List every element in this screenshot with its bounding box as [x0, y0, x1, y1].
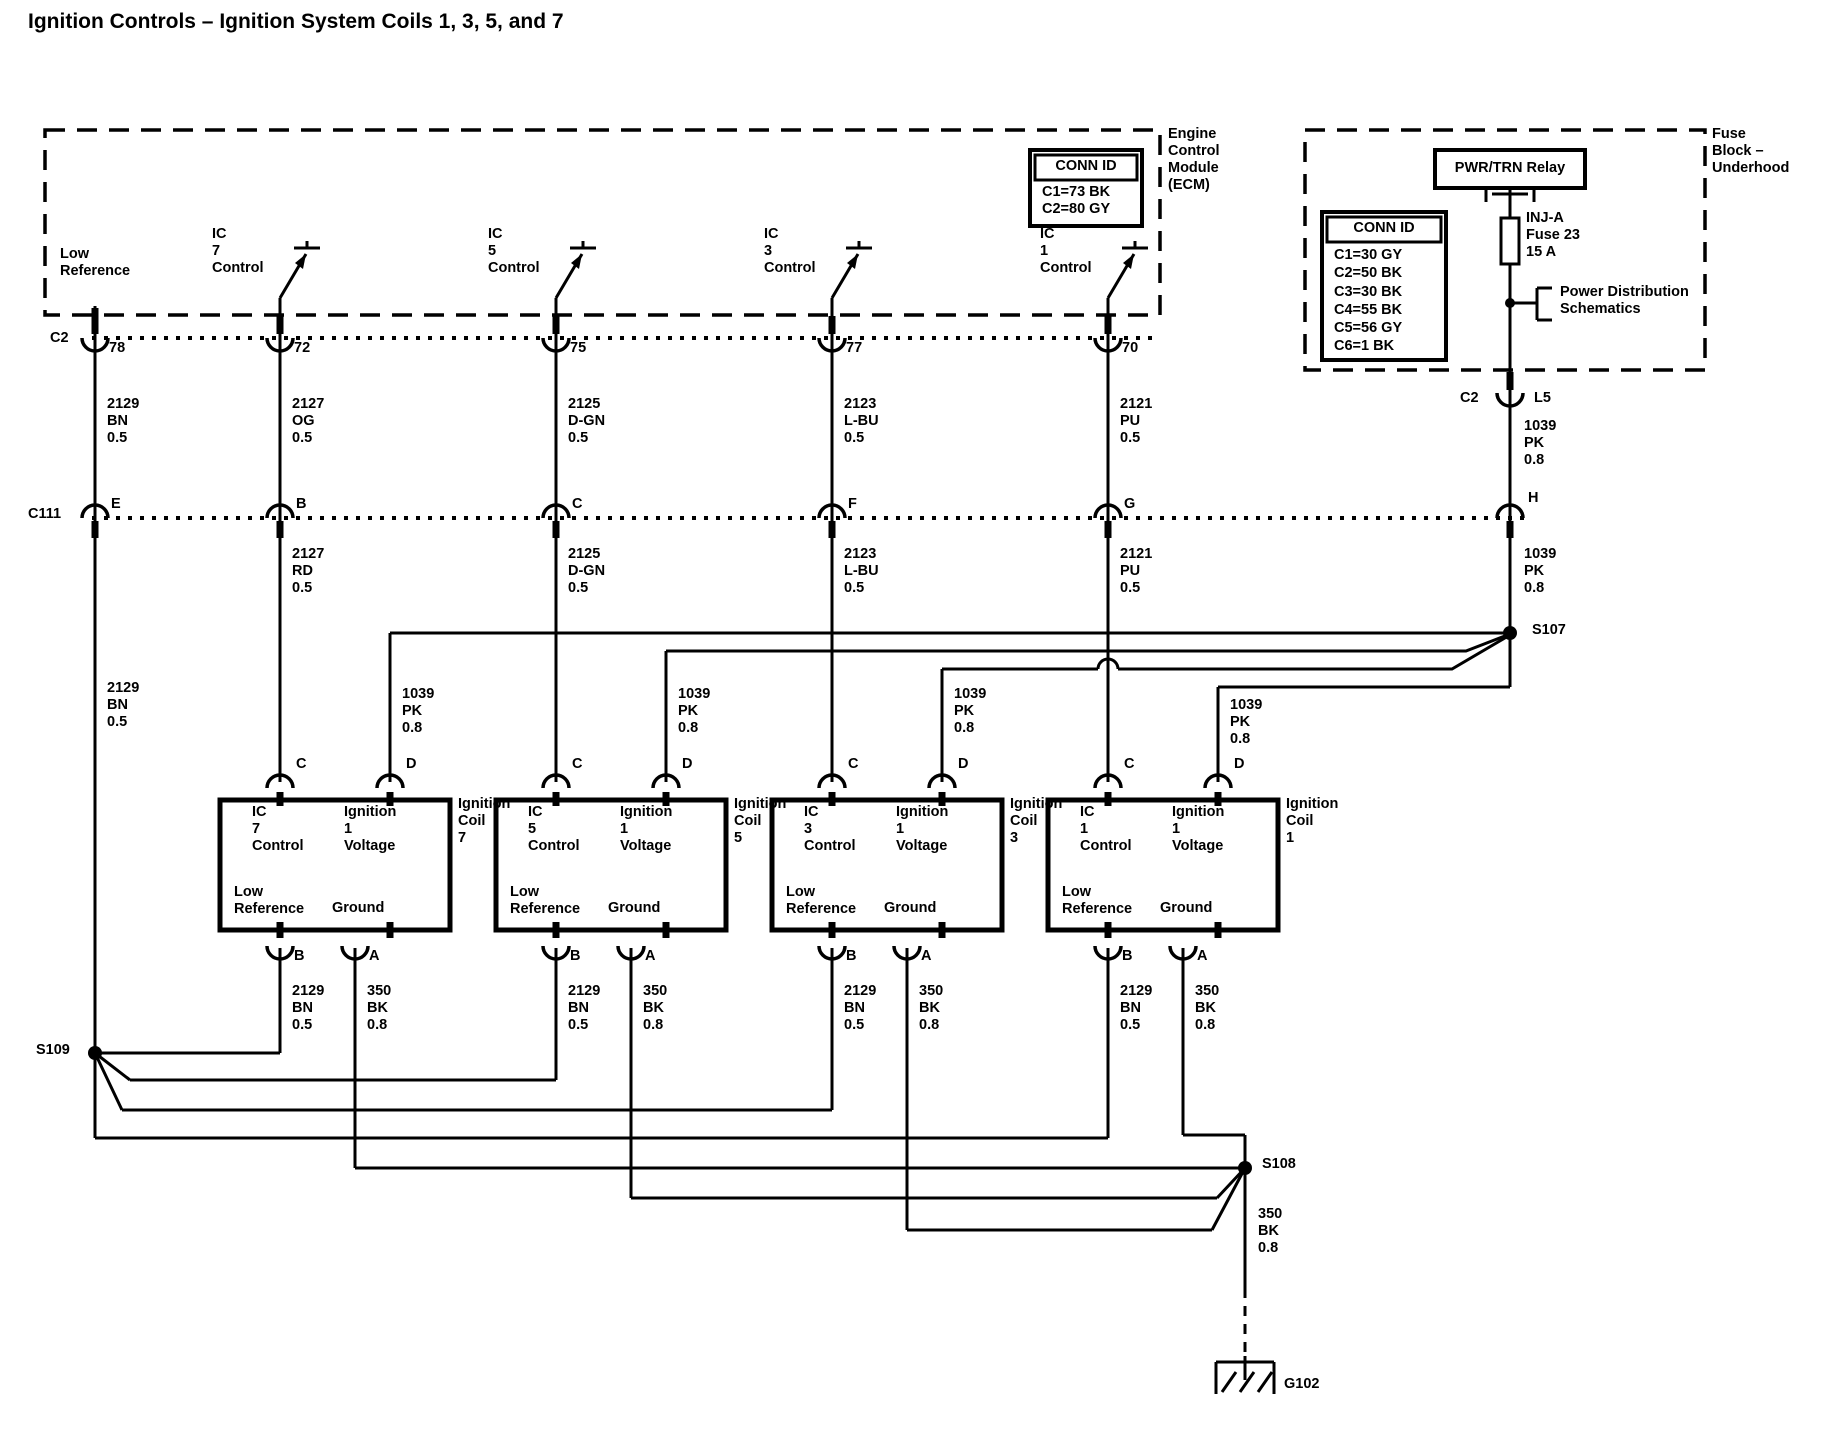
power-distribution-label: Power Distribution Schematics	[1560, 284, 1689, 318]
coil1-ground-label: Ground	[1160, 900, 1212, 917]
coil5-pin-c: C	[572, 756, 582, 773]
wire-label-350-bk-ground: 350 BK 0.8	[1258, 1206, 1282, 1257]
coil7-ground-label: Ground	[332, 900, 384, 917]
coil7-pin-a: A	[369, 948, 379, 965]
coil3-ground-label: Ground	[884, 900, 936, 917]
coil5-pin-d: D	[682, 756, 692, 773]
wire-label-2121-pu-lower: 2121 PU 0.5	[1120, 546, 1152, 597]
coil3-pin-b: B	[846, 948, 856, 965]
c2-pin-77: 77	[846, 340, 862, 357]
coil7-pin-b: B	[294, 948, 304, 965]
coil1-ignition-voltage-label: Ignition 1 Voltage	[1172, 804, 1224, 855]
coil3-feed-label: 1039 PK 0.8	[954, 686, 986, 737]
coil7-pin-c: C	[296, 756, 306, 773]
splice-s107-dot	[1503, 626, 1517, 640]
coil7-b-wire-label: 2129 BN 0.5	[292, 983, 324, 1034]
c2-row-label: C2	[50, 330, 69, 347]
fuse-block-label: Fuse Block – Underhood	[1712, 126, 1789, 177]
wire-label-2125-dgn-lower: 2125 D-GN 0.5	[568, 546, 605, 597]
coil7-ignition-voltage-label: Ignition 1 Voltage	[344, 804, 396, 855]
wire-label-2123-lbu-lower: 2123 L-BU 0.5	[844, 546, 879, 597]
splice-s107-label: S107	[1532, 622, 1566, 639]
coil3-pin-c: C	[848, 756, 858, 773]
c111-pin-f: F	[848, 496, 857, 513]
ic5-control-label: IC 5 Control	[488, 226, 540, 277]
ground-icon-g102	[1216, 1356, 1274, 1394]
ic1-switch-icon	[1108, 241, 1148, 298]
ecm-box	[45, 130, 1160, 315]
coil5-ignition-voltage-label: Ignition 1 Voltage	[620, 804, 672, 855]
wire-label-2127-og: 2127 OG 0.5	[292, 396, 324, 447]
coil1-ic-control-label: IC 1 Control	[1080, 804, 1132, 855]
ecm-label: Engine Control Module (ECM)	[1168, 126, 1220, 194]
coil3-name: Ignition Coil 3	[1010, 796, 1062, 847]
coil3-low-reference-label: Low Reference	[786, 884, 856, 918]
coil5-low-reference-label: Low Reference	[510, 884, 580, 918]
ic7-control-label: IC 7 Control	[212, 226, 264, 277]
coil5-a-wire-label: 350 BK 0.8	[643, 983, 667, 1034]
coil1-feed-label: 1039 PK 0.8	[1230, 697, 1262, 748]
wire-label-2121-pu-upper: 2121 PU 0.5	[1120, 396, 1152, 447]
low-reference-label: Low Reference	[60, 246, 130, 280]
c111-pin-c: C	[572, 496, 582, 513]
ground-g102-label: G102	[1284, 1376, 1319, 1393]
coil1-pin-b: B	[1122, 948, 1132, 965]
coil1-pin-d: D	[1234, 756, 1244, 773]
coil1-b-wire-label: 2129 BN 0.5	[1120, 983, 1152, 1034]
coil3-pin-a: A	[921, 948, 931, 965]
coil7-a-wire-label: 350 BK 0.8	[367, 983, 391, 1034]
ic5-switch-icon	[556, 241, 596, 298]
wire-label-1039-pk-upper: 1039 PK 0.8	[1524, 418, 1556, 469]
wire-label-2127-rd: 2127 RD 0.5	[292, 546, 324, 597]
splice-s108-label: S108	[1262, 1156, 1296, 1173]
s109-branches	[95, 948, 1108, 1138]
fuse-conn-id-rows: C1=30 GY C2=50 BK C3=30 BK C4=55 BK C5=5…	[1334, 246, 1402, 356]
ic3-control-label: IC 3 Control	[764, 226, 816, 277]
fuse-pin-l5-label: L5	[1534, 390, 1551, 407]
ecm-conn-id-rows: C1=73 BK C2=80 GY	[1042, 184, 1110, 218]
splice-s109-label: S109	[36, 1042, 70, 1059]
c111-pin-b: B	[296, 496, 306, 513]
coil5-pin-a: A	[645, 948, 655, 965]
coil5-b-wire-label: 2129 BN 0.5	[568, 983, 600, 1034]
s108-branches	[355, 948, 1245, 1230]
coil1-pin-a: A	[1197, 948, 1207, 965]
fuse-conn-id-header: CONN ID	[1327, 220, 1441, 237]
coil3-pin-d: D	[958, 756, 968, 773]
c111-row-label: C111	[28, 506, 61, 523]
coil5-name: Ignition Coil 5	[734, 796, 786, 847]
coil5-pin-b: B	[570, 948, 580, 965]
coil5-ground-label: Ground	[608, 900, 660, 917]
coil7-feed-label: 1039 PK 0.8	[402, 686, 434, 737]
page-title: Ignition Controls – Ignition System Coil…	[28, 10, 564, 34]
coil3-ic-control-label: IC 3 Control	[804, 804, 856, 855]
s107-branches	[390, 633, 1510, 782]
coil1-a-wire-label: 350 BK 0.8	[1195, 983, 1219, 1034]
coil7-ic-control-label: IC 7 Control	[252, 804, 304, 855]
coil5-ic-control-label: IC 5 Control	[528, 804, 580, 855]
pwr-trn-relay-label: PWR/TRN Relay	[1435, 160, 1585, 177]
coil7-low-reference-label: Low Reference	[234, 884, 304, 918]
wire-label-2125-dgn-upper: 2125 D-GN 0.5	[568, 396, 605, 447]
wire-label-1039-pk-lower: 1039 PK 0.8	[1524, 546, 1556, 597]
c111-pin-g: G	[1124, 496, 1135, 513]
ic7-switch-icon	[280, 241, 320, 298]
fuse-label: INJ-A Fuse 23 15 A	[1526, 210, 1580, 261]
ic3-switch-icon	[832, 241, 872, 298]
ic1-control-label: IC 1 Control	[1040, 226, 1092, 277]
coil1-pin-c: C	[1124, 756, 1134, 773]
coil1-low-reference-label: Low Reference	[1062, 884, 1132, 918]
coil7-name: Ignition Coil 7	[458, 796, 510, 847]
coil3-a-wire-label: 350 BK 0.8	[919, 983, 943, 1034]
wire-label-2129-bn-lower: 2129 BN 0.5	[107, 680, 139, 731]
c2-pin-75: 75	[570, 340, 586, 357]
coil3-b-wire-label: 2129 BN 0.5	[844, 983, 876, 1034]
c111-pin-e: E	[111, 496, 121, 513]
ecm-conn-id-header: CONN ID	[1035, 158, 1137, 175]
coil3-ignition-voltage-label: Ignition 1 Voltage	[896, 804, 948, 855]
c2-pin-70: 70	[1122, 340, 1138, 357]
coil7-pin-d: D	[406, 756, 416, 773]
c2-pin-72: 72	[294, 340, 310, 357]
wiring-diagram: Ignition Controls – Ignition System Coil…	[0, 0, 1842, 1440]
splice-s109-dot	[88, 1046, 102, 1060]
fuse-icon	[1501, 218, 1519, 264]
wire-label-2129-bn-upper: 2129 BN 0.5	[107, 396, 139, 447]
power-distribution-bracket	[1505, 288, 1552, 320]
c111-pin-h: H	[1528, 490, 1538, 507]
coil5-feed-label: 1039 PK 0.8	[678, 686, 710, 737]
wire-label-2123-lbu-upper: 2123 L-BU 0.5	[844, 396, 879, 447]
c2-pin-78: 78	[109, 340, 125, 357]
coil1-name: Ignition Coil 1	[1286, 796, 1338, 847]
fuse-c2-label: C2	[1460, 390, 1479, 407]
